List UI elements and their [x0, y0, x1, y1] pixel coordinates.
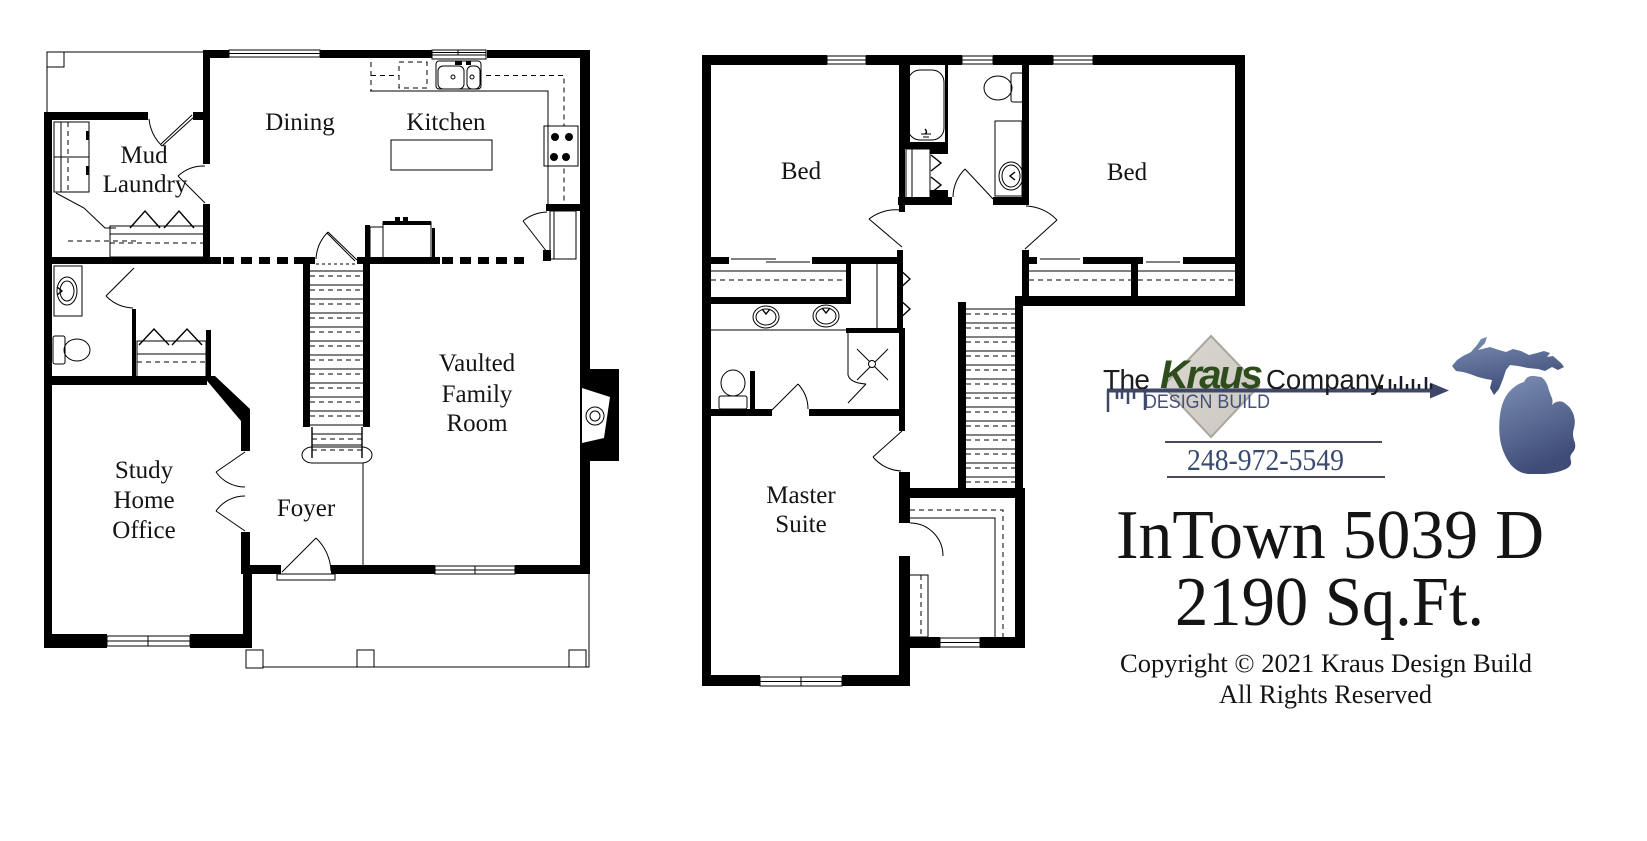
- svg-text:248-972-5549: 248-972-5549: [1187, 442, 1344, 477]
- svg-text:Family: Family: [442, 381, 513, 408]
- svg-text:Dining: Dining: [265, 109, 335, 136]
- svg-text:Bed: Bed: [1107, 159, 1148, 186]
- svg-text:All Rights Reserved: All Rights Reserved: [1219, 680, 1432, 709]
- svg-text:Laundry: Laundry: [103, 171, 188, 198]
- svg-text:Company: Company: [1266, 364, 1384, 395]
- svg-text:The: The: [1103, 364, 1150, 395]
- svg-text:Vaulted: Vaulted: [439, 350, 516, 377]
- svg-text:Bed: Bed: [781, 158, 822, 185]
- svg-text:InTown 5039 D: InTown 5039 D: [1116, 497, 1544, 574]
- svg-text:Kitchen: Kitchen: [406, 109, 486, 136]
- svg-text:Suite: Suite: [775, 511, 826, 538]
- svg-text:Master: Master: [766, 482, 836, 509]
- svg-text:Office: Office: [112, 517, 175, 544]
- svg-text:Copyright © 2021 Kraus Design: Copyright © 2021 Kraus Design Build: [1120, 649, 1532, 678]
- svg-text:Study: Study: [115, 457, 174, 484]
- svg-text:2190 Sq.Ft.: 2190 Sq.Ft.: [1175, 564, 1484, 641]
- svg-text:Home: Home: [113, 487, 174, 514]
- svg-text:Foyer: Foyer: [277, 495, 336, 522]
- svg-text:DESIGN BUILD: DESIGN BUILD: [1144, 392, 1270, 413]
- svg-text:Room: Room: [446, 410, 508, 437]
- svg-text:Kraus: Kraus: [1160, 353, 1263, 397]
- svg-text:Mud: Mud: [120, 142, 168, 169]
